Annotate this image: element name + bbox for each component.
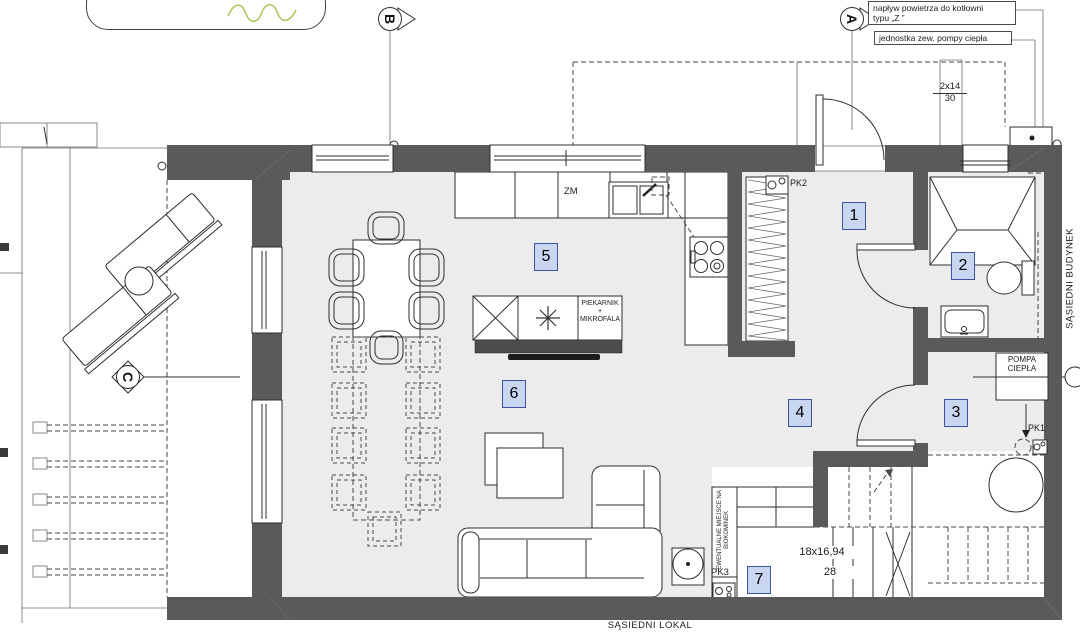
island-counter-bar — [475, 340, 622, 353]
side-table — [672, 548, 704, 585]
room-badge-2: 2 — [951, 252, 975, 280]
cooktop — [690, 237, 728, 277]
window — [252, 247, 282, 333]
dishwasher-label: ZM — [564, 187, 578, 198]
window — [312, 145, 393, 172]
stairs-tread: 28 — [800, 566, 860, 579]
pergola-beams — [33, 422, 167, 577]
window — [960, 145, 1011, 172]
section-marker-b: B — [379, 8, 416, 31]
radiator — [746, 176, 788, 341]
window — [252, 400, 282, 523]
coffee-table — [497, 448, 563, 498]
biofireplace-label: EWENTUALNE MIEJSCE NA BIOKOMINEK — [717, 486, 731, 574]
pk2-symbol — [766, 176, 788, 194]
tv — [508, 354, 600, 360]
sun-loungers — [60, 191, 222, 374]
pergola-beam — [33, 494, 167, 505]
room-badge-1: 1 — [842, 202, 866, 230]
section-marker-c: C — [112, 361, 240, 393]
survey-point — [158, 162, 166, 170]
marker-letter: A — [844, 14, 860, 24]
oven-microwave-label: PIEKARNIK + MIKROFALA — [578, 300, 622, 324]
heat-pump-unit-label: jednostka zew. pompy ciepła — [874, 31, 1012, 45]
room-badge-3: 3 — [944, 399, 968, 427]
floor-plan-drawing: B A C — [0, 0, 1080, 637]
pk2-label: PK2 — [790, 178, 807, 188]
air-inflow-line2: typu „Z ” — [873, 13, 905, 23]
kitchen-sink — [609, 182, 668, 218]
marker-letter: C — [120, 372, 136, 382]
stamp-outline — [86, 0, 326, 30]
terrace — [0, 123, 167, 623]
exterior-steps-label: 2x14 30 — [933, 82, 967, 105]
floor-plan: B A C — [0, 0, 1080, 637]
entrance-door — [815, 95, 885, 171]
room-badge-4: 4 — [788, 399, 812, 427]
room-badge-6: 6 — [502, 380, 526, 408]
air-inflow-line1: napływ powietrza do kotłowni — [873, 3, 983, 13]
marker-letter: B — [382, 14, 398, 24]
room-badge-7: 7 — [747, 566, 771, 594]
pergola-beam — [33, 422, 167, 433]
water-tank — [989, 458, 1043, 512]
pergola-beam — [33, 530, 167, 541]
heat-pump-label: POMPA CIEPŁA — [996, 355, 1048, 373]
shower — [930, 177, 1035, 265]
kitchen-counter — [455, 172, 728, 218]
window — [490, 145, 645, 172]
room-badge-5: 5 — [534, 243, 558, 271]
neighbor-unit-label: SĄSIEDNI LOKAL — [595, 621, 705, 632]
pergola-beam — [33, 566, 167, 577]
toilet — [987, 261, 1034, 295]
washbasin — [941, 306, 988, 337]
pk1-label: PK1 — [1028, 423, 1045, 433]
neighbor-building-label: SĄSIEDNI BUDYNEK — [1066, 218, 1077, 338]
pergola-beam — [33, 458, 167, 469]
patio-table — [125, 267, 153, 295]
air-inflow-label: napływ powietrza do kotłowni typu „Z ” — [868, 1, 1016, 25]
stairs-dimension: 18x16,94 — [782, 546, 862, 559]
pk3-symbol — [713, 583, 735, 599]
